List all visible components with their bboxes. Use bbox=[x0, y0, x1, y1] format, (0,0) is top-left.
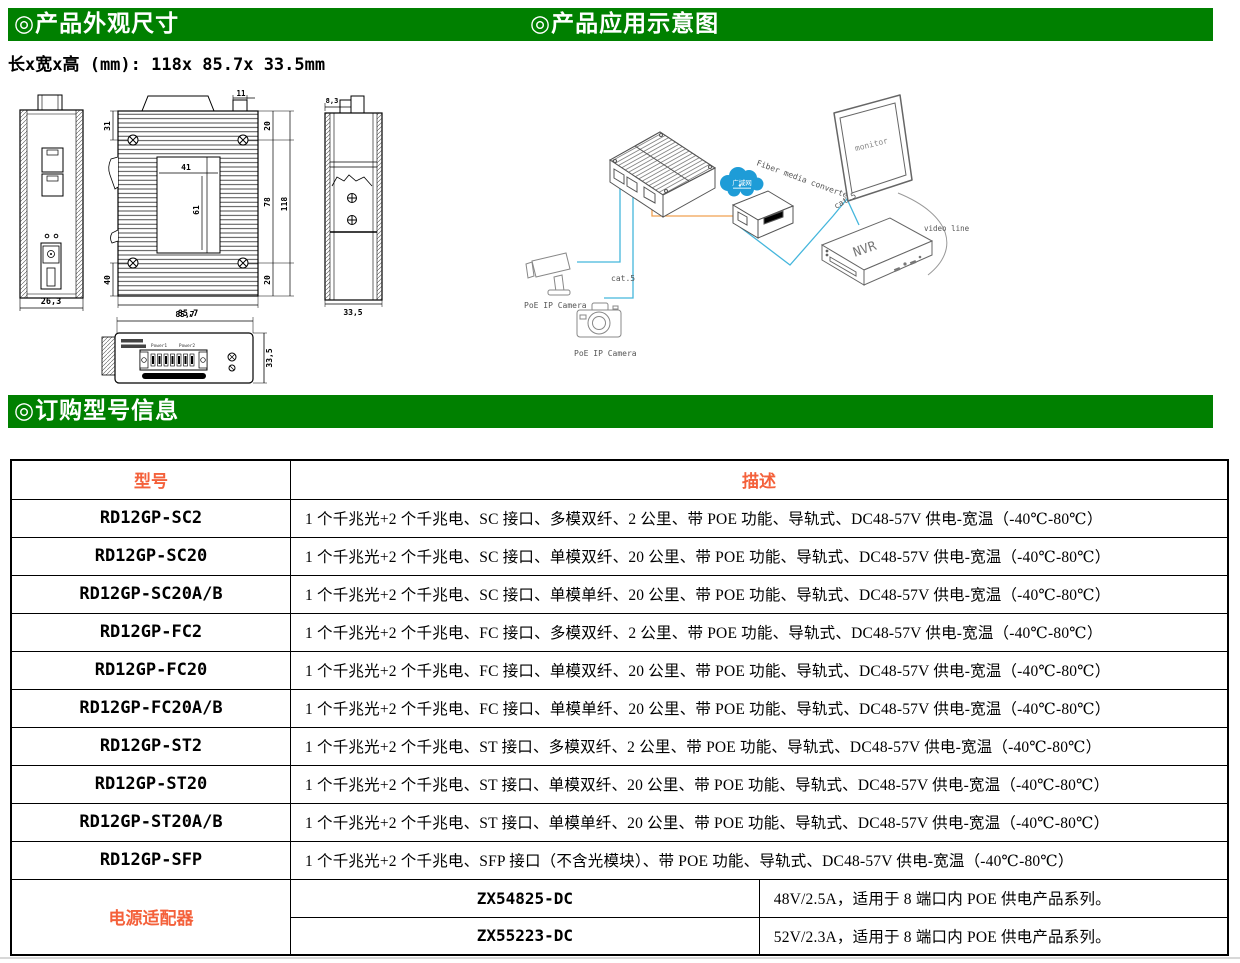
model-cell: RD12GP-FC20 bbox=[11, 651, 291, 689]
sc-fiber-port bbox=[41, 243, 61, 289]
cloud-label: 广域网 bbox=[732, 178, 752, 187]
dim-back-top: 11 bbox=[236, 90, 246, 98]
din-clip bbox=[109, 157, 118, 189]
col-header-model: 型号 bbox=[11, 460, 291, 499]
dim-plate-height: 61 bbox=[192, 205, 201, 215]
rj45-ports bbox=[42, 148, 63, 196]
video-line-label: video line bbox=[924, 224, 970, 233]
terminal-label-power1: Power1 bbox=[151, 343, 168, 349]
table-row: RD12GP-SC2 1 个千兆光+2 个千兆电、SC 接口、多模双纤、2 公里… bbox=[11, 499, 1228, 537]
print-marking bbox=[121, 339, 143, 343]
media-converter bbox=[733, 191, 793, 238]
adapter-model-cell: ZX54825-DC bbox=[291, 879, 760, 917]
order-table: 型号 描述 RD12GP-SC2 1 个千兆光+2 个千兆电、SC 接口、多模双… bbox=[10, 459, 1229, 956]
dim-total-height: 118 bbox=[280, 197, 289, 212]
model-cell: RD12GP-FC2 bbox=[11, 613, 291, 651]
desc-cell: 1 个千兆光+2 个千兆电、ST 接口、单模单纤、20 公里、带 POE 功能、… bbox=[291, 803, 1229, 841]
section-header-bar-ordering: ◎订购型号信息 bbox=[8, 395, 1213, 428]
table-row: RD12GP-ST20 1 个千兆光+2 个千兆电、ST 接口、单模双纤、20 … bbox=[11, 765, 1228, 803]
dimensions-note: 长x宽x高 (mm): 118x 85.7x 33.5mm bbox=[8, 50, 325, 75]
camera-label-b: PoE IP Camera bbox=[574, 349, 637, 358]
table-row: RD12GP-SFP 1 个千兆光+2 个千兆电、SFP 接口（不含光模块）、带… bbox=[11, 841, 1228, 879]
section-title-application: ◎产品应用示意图 bbox=[530, 8, 719, 41]
cat5-cable bbox=[577, 186, 620, 262]
desc-cell: 1 个千兆光+2 个千兆电、SC 接口、单模双纤、20 公里、带 POE 功能、… bbox=[291, 537, 1229, 575]
terminal-block bbox=[140, 350, 207, 370]
table-row: RD12GP-SC20A/B 1 个千兆光+2 个千兆电、SC 接口、单模单纤、… bbox=[11, 575, 1228, 613]
table-row: RD12GP-SC20 1 个千兆光+2 个千兆电、SC 接口、单模双纤、20 … bbox=[11, 537, 1228, 575]
poe-switch bbox=[610, 132, 715, 217]
cat5-label-b: cat.5 bbox=[611, 274, 635, 283]
dim-right-mid: 78 bbox=[263, 197, 272, 207]
dim-bottom-depth: 33,5 bbox=[265, 348, 274, 367]
dim-side-width: 33,5 bbox=[343, 308, 362, 317]
front-view-drawing: 26,3 bbox=[14, 92, 99, 322]
network-cloud: 广域网 bbox=[720, 167, 764, 197]
model-cell: RD12GP-FC20A/B bbox=[11, 689, 291, 727]
desc-cell: 1 个千兆光+2 个千兆电、FC 接口、单模双纤、20 公里、带 POE 功能、… bbox=[291, 651, 1229, 689]
table-row: RD12GP-ST2 1 个千兆光+2 个千兆电、ST 接口、多模双纤、2 公里… bbox=[11, 727, 1228, 765]
model-cell: RD12GP-SC20A/B bbox=[11, 575, 291, 613]
poe-camera-ptz bbox=[526, 253, 570, 295]
table-row: RD12GP-FC20 1 个千兆光+2 个千兆电、FC 接口、单模双纤、20 … bbox=[11, 651, 1228, 689]
desc-cell: 1 个千兆光+2 个千兆电、SC 接口、多模双纤、2 公里、带 POE 功能、导… bbox=[291, 499, 1229, 537]
nvr: NVR bbox=[822, 218, 932, 285]
adapter-label-cell: 电源适配器 bbox=[11, 879, 291, 955]
page-bottom-rule bbox=[0, 957, 1240, 959]
camera-label-a: PoE IP Camera bbox=[524, 301, 587, 310]
table-row-adapter: 电源适配器 ZX54825-DC 48V/2.5A，适用于 8 端口内 POE … bbox=[11, 879, 1228, 917]
section-header-bar-top: ◎产品外观尺寸 ◎产品应用示意图 bbox=[8, 8, 1213, 41]
table-row: RD12GP-FC2 1 个千兆光+2 个千兆电、FC 接口、多模双纤、2 公里… bbox=[11, 613, 1228, 651]
desc-cell: 1 个千兆光+2 个千兆电、FC 接口、多模双纤、2 公里、带 POE 功能、导… bbox=[291, 613, 1229, 651]
model-cell: RD12GP-ST20A/B bbox=[11, 803, 291, 841]
table-row: RD12GP-FC20A/B 1 个千兆光+2 个千兆电、FC 接口、单模单纤、… bbox=[11, 689, 1228, 727]
datasheet-page: ◎产品外观尺寸 ◎产品应用示意图 长x宽x高 (mm): 118x 85.7x … bbox=[0, 0, 1240, 963]
dim-plate-width: 41 bbox=[181, 163, 191, 172]
print-marking bbox=[121, 345, 146, 349]
desc-cell: 1 个千兆光+2 个千兆电、SFP 接口（不含光模块）、带 POE 功能、导轨式… bbox=[291, 841, 1229, 879]
desc-cell: 1 个千兆光+2 个千兆电、FC 接口、单模单纤、20 公里、带 POE 功能、… bbox=[291, 689, 1229, 727]
model-cell: RD12GP-ST2 bbox=[11, 727, 291, 765]
section-title-appearance: ◎产品外观尺寸 bbox=[14, 8, 179, 41]
model-cell: RD12GP-SC2 bbox=[11, 499, 291, 537]
desc-cell: 1 个千兆光+2 个千兆电、ST 接口、单模双纤、20 公里、带 POE 功能、… bbox=[291, 765, 1229, 803]
desc-cell: 1 个千兆光+2 个千兆电、SC 接口、单模单纤、20 公里、带 POE 功能、… bbox=[291, 575, 1229, 613]
dim-front-width: 26,3 bbox=[41, 297, 61, 307]
adapter-model-cell: ZX55223-DC bbox=[291, 917, 760, 955]
bottom-view-drawing: 85,7 Power1 Power2 bbox=[95, 306, 280, 392]
model-cell: RD12GP-SC20 bbox=[11, 537, 291, 575]
col-header-desc: 描述 bbox=[291, 460, 1229, 499]
dim-left-upper: 31 bbox=[103, 121, 112, 131]
dim-side-top: 8,3 bbox=[326, 97, 339, 105]
adapter-desc-cell: 52V/2.3A，适用于 8 端口内 POE 供电产品系列。 bbox=[759, 917, 1228, 955]
dim-right-upper: 20 bbox=[263, 121, 272, 131]
side-view-drawing: 8,3 33,5 bbox=[318, 90, 396, 322]
dim-right-lower: 20 bbox=[263, 275, 272, 285]
terminal-label-power2: Power2 bbox=[179, 343, 196, 349]
dim-bottom-width: 85,7 bbox=[175, 310, 194, 319]
desc-cell: 1 个千兆光+2 个千兆电、ST 接口、多模双纤、2 公里、带 POE 功能、导… bbox=[291, 727, 1229, 765]
din-clip bbox=[111, 230, 119, 243]
adapter-desc-cell: 48V/2.5A，适用于 8 端口内 POE 供电产品系列。 bbox=[759, 879, 1228, 917]
table-row: RD12GP-ST20A/B 1 个千兆光+2 个千兆电、ST 接口、单模单纤、… bbox=[11, 803, 1228, 841]
back-view-drawing: 11 41 61 31 40 20 78 bbox=[98, 90, 303, 325]
section-title-ordering: ◎订购型号信息 bbox=[14, 395, 179, 428]
model-cell: RD12GP-SFP bbox=[11, 841, 291, 879]
model-cell: RD12GP-ST20 bbox=[11, 765, 291, 803]
order-table-header-row: 型号 描述 bbox=[11, 460, 1228, 499]
vent-slot bbox=[142, 373, 206, 379]
application-diagram: 广域网 Fiber media converter monitor bbox=[500, 85, 1220, 375]
dim-left-lower: 40 bbox=[103, 275, 112, 285]
monitor: monitor bbox=[834, 95, 912, 201]
